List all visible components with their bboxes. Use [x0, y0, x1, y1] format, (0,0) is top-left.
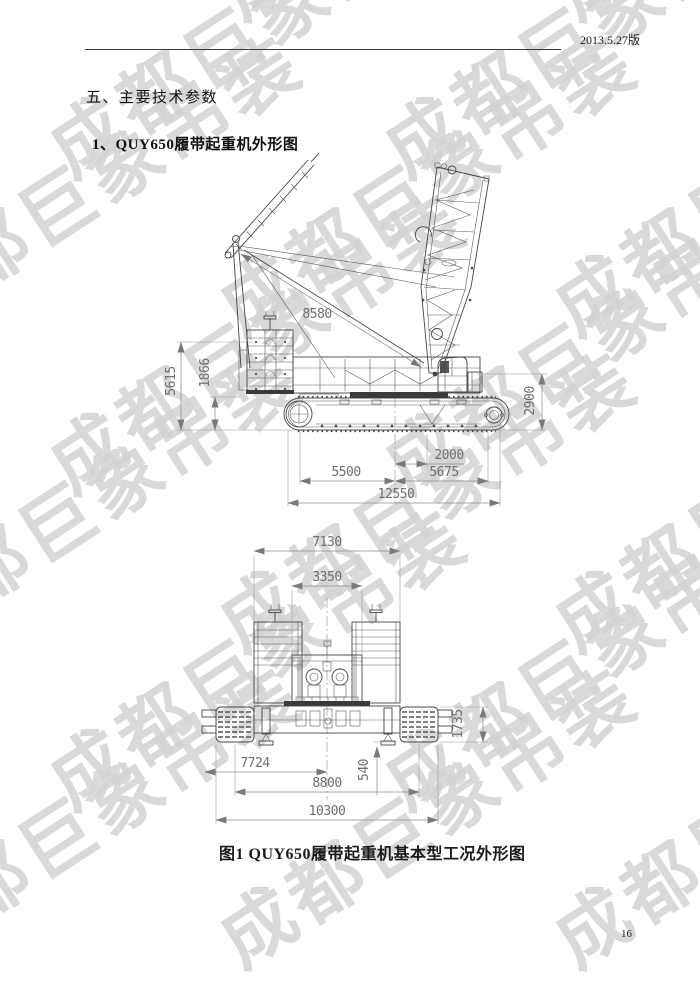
crawler-track-side [284, 397, 509, 431]
dim-label-7130: 7130 [312, 535, 341, 550]
dim-label-12550: 12550 [378, 487, 415, 502]
version-label: 2013.5.27版 [580, 31, 640, 48]
dim-label-10300: 10300 [309, 804, 346, 819]
header-rule [85, 49, 561, 50]
section-heading: 五、主要技术参数 [86, 86, 218, 107]
dim-label-8800: 8800 [312, 776, 341, 791]
side-view-drawing: 5615 1866 2900 2000 5500 5675 12550 8580 [160, 150, 555, 510]
page-number: 16 [621, 928, 632, 940]
main-boom [415, 163, 489, 376]
dim-label-8580: 8580 [302, 307, 331, 322]
dim-label-3350: 3350 [312, 570, 341, 585]
jib-strut [225, 153, 319, 258]
pendant-cables [239, 246, 455, 378]
slewing-ring [284, 701, 370, 706]
dim-label-7724: 7724 [240, 756, 270, 771]
dim-label-1866: 1866 [198, 358, 213, 387]
counterweight-stack [239, 311, 294, 394]
rear-view-drawing: 7130 3350 1735 540 7724 8800 10300 [195, 530, 510, 835]
dim-label-5500: 5500 [331, 465, 360, 480]
dim-label-5615: 5615 [164, 366, 179, 395]
dim-label-2900: 2900 [523, 386, 538, 415]
dim-label-1735: 1735 [451, 709, 466, 738]
side-view-dimensions: 5615 1866 2900 2000 5500 5675 12550 8580 [164, 254, 547, 506]
rear-view-dimensions: 7130 3350 1735 540 7724 8800 10300 [205, 535, 488, 824]
dim-label-2000: 2000 [434, 448, 463, 463]
dim-label-5675: 5675 [429, 465, 458, 480]
figure-caption: 图1 QUY650履带起重机基本型工况外形图 [219, 840, 526, 864]
dim-label-540: 540 [357, 759, 372, 781]
